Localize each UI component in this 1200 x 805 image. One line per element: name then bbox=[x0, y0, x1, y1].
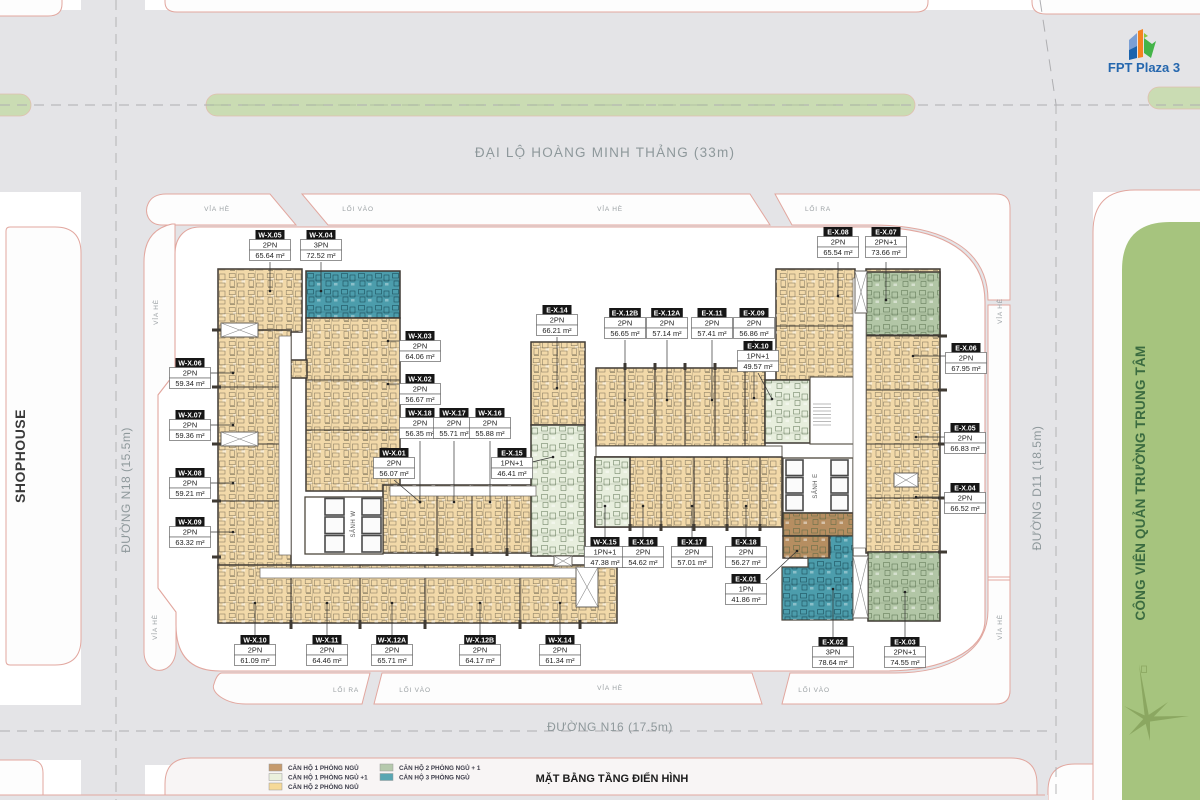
svg-text:2PN: 2PN bbox=[958, 494, 972, 503]
svg-text:2PN: 2PN bbox=[747, 319, 761, 328]
svg-text:49.57 m²: 49.57 m² bbox=[743, 362, 773, 371]
svg-text:56.07 m²: 56.07 m² bbox=[379, 469, 409, 478]
svg-text:55.88 m²: 55.88 m² bbox=[475, 429, 505, 438]
svg-text:W-X.08: W-X.08 bbox=[178, 470, 201, 477]
svg-text:2PN: 2PN bbox=[385, 646, 399, 655]
svg-text:72.52 m²: 72.52 m² bbox=[306, 251, 336, 260]
svg-text:57.41 m²: 57.41 m² bbox=[697, 329, 727, 338]
svg-text:59.34 m²: 59.34 m² bbox=[175, 379, 205, 388]
svg-text:2PN: 2PN bbox=[387, 459, 401, 468]
svg-text:73.66 m²: 73.66 m² bbox=[871, 248, 901, 257]
svg-text:1PN+1: 1PN+1 bbox=[594, 548, 617, 557]
svg-text:E-X.06: E-X.06 bbox=[955, 345, 977, 352]
svg-text:2PN: 2PN bbox=[183, 369, 197, 378]
svg-text:CĂN HỘ 2 PHÒNG NGỦ: CĂN HỘ 2 PHÒNG NGỦ bbox=[288, 782, 359, 791]
svg-text:VỈA HÈ: VỈA HÈ bbox=[151, 299, 160, 325]
svg-text:2PN: 2PN bbox=[553, 646, 567, 655]
svg-text:2PN: 2PN bbox=[183, 421, 197, 430]
svg-text:78.64 m²: 78.64 m² bbox=[818, 658, 848, 667]
svg-text:2PN: 2PN bbox=[618, 319, 632, 328]
svg-text:VỈA HÈ: VỈA HÈ bbox=[995, 298, 1004, 324]
svg-text:E-X.05: E-X.05 bbox=[954, 425, 976, 432]
svg-text:66.52 m²: 66.52 m² bbox=[950, 504, 980, 513]
svg-text:W-X.11: W-X.11 bbox=[316, 637, 339, 644]
svg-text:W-X.16: W-X.16 bbox=[478, 410, 501, 417]
svg-text:65.71 m²: 65.71 m² bbox=[377, 656, 407, 665]
svg-text:E-X.12B: E-X.12B bbox=[612, 310, 638, 317]
svg-text:2PN: 2PN bbox=[636, 548, 650, 557]
svg-text:2PN: 2PN bbox=[413, 419, 427, 428]
svg-text:W-X.06: W-X.06 bbox=[178, 360, 201, 367]
svg-text:SHOPHOUSE: SHOPHOUSE bbox=[12, 409, 28, 503]
svg-text:47.38 m²: 47.38 m² bbox=[590, 558, 620, 567]
svg-text:VỈA HÈ: VỈA HÈ bbox=[204, 204, 230, 213]
svg-text:E-X.16: E-X.16 bbox=[632, 539, 654, 546]
svg-text:ĐƯỜNG N16 (17.5m): ĐƯỜNG N16 (17.5m) bbox=[547, 719, 673, 734]
svg-text:57.14 m²: 57.14 m² bbox=[652, 329, 682, 338]
svg-text:2PN: 2PN bbox=[959, 354, 973, 363]
svg-text:CĂN HỘ 1 PHÒNG NGỦ: CĂN HỘ 1 PHÒNG NGỦ bbox=[288, 763, 359, 772]
svg-text:2PN: 2PN bbox=[447, 419, 461, 428]
svg-text:CĂN HỘ 3 PHÒNG NGỦ: CĂN HỘ 3 PHÒNG NGỦ bbox=[399, 773, 470, 782]
svg-text:E-X.17: E-X.17 bbox=[681, 539, 703, 546]
svg-text:E-X.09: E-X.09 bbox=[743, 310, 765, 317]
svg-text:2PN+1: 2PN+1 bbox=[894, 648, 917, 657]
svg-text:W-X.09: W-X.09 bbox=[178, 519, 201, 526]
svg-text:E-X.07: E-X.07 bbox=[875, 229, 897, 236]
svg-text:W-X.12A: W-X.12A bbox=[378, 637, 406, 644]
svg-text:2PN: 2PN bbox=[958, 434, 972, 443]
svg-text:2PN: 2PN bbox=[473, 646, 487, 655]
svg-text:2PN: 2PN bbox=[550, 316, 564, 325]
svg-text:66.83 m²: 66.83 m² bbox=[950, 444, 980, 453]
svg-text:64.46 m²: 64.46 m² bbox=[312, 656, 342, 665]
svg-text:2PN: 2PN bbox=[660, 319, 674, 328]
svg-text:W-X.14: W-X.14 bbox=[548, 637, 571, 644]
svg-text:VỈA HÈ: VỈA HÈ bbox=[597, 683, 623, 692]
svg-text:2PN: 2PN bbox=[413, 342, 427, 351]
svg-text:46.41 m²: 46.41 m² bbox=[497, 469, 527, 478]
svg-text:3PN: 3PN bbox=[314, 241, 328, 250]
svg-text:W-X.05: W-X.05 bbox=[258, 232, 281, 239]
svg-text:54.62 m²: 54.62 m² bbox=[628, 558, 658, 567]
svg-text:1PN+1: 1PN+1 bbox=[747, 352, 770, 361]
svg-text:59.36 m²: 59.36 m² bbox=[175, 431, 205, 440]
svg-text:56.27 m²: 56.27 m² bbox=[731, 558, 761, 567]
svg-text:E-X.15: E-X.15 bbox=[501, 450, 523, 457]
svg-text:E-X.18: E-X.18 bbox=[735, 539, 757, 546]
svg-text:E-X.01: E-X.01 bbox=[735, 576, 757, 583]
svg-text:2PN: 2PN bbox=[263, 241, 277, 250]
svg-text:2PN: 2PN bbox=[413, 385, 427, 394]
svg-text:VỈA HÈ: VỈA HÈ bbox=[150, 614, 159, 640]
svg-text:ĐƯỜNG D11 (18.5m): ĐƯỜNG D11 (18.5m) bbox=[1029, 426, 1044, 551]
svg-text:FPT Plaza 3: FPT Plaza 3 bbox=[1108, 60, 1180, 75]
svg-text:CĂN HỘ 2 PHÒNG NGỦ + 1: CĂN HỘ 2 PHÒNG NGỦ + 1 bbox=[399, 763, 481, 772]
svg-text:W-X.03: W-X.03 bbox=[408, 333, 431, 340]
svg-text:2PN: 2PN bbox=[739, 548, 753, 557]
svg-text:E-X.10: E-X.10 bbox=[747, 343, 769, 350]
svg-text:2PN: 2PN bbox=[705, 319, 719, 328]
svg-text:W-X.18: W-X.18 bbox=[408, 410, 431, 417]
svg-text:61.09 m²: 61.09 m² bbox=[240, 656, 270, 665]
svg-text:SẢNH E: SẢNH E bbox=[812, 473, 819, 498]
svg-text:2PN: 2PN bbox=[183, 528, 197, 537]
svg-text:2PN+1: 2PN+1 bbox=[875, 238, 898, 247]
svg-text:64.17 m²: 64.17 m² bbox=[465, 656, 495, 665]
svg-text:W-X.01: W-X.01 bbox=[382, 450, 405, 457]
svg-text:VỈA HÈ: VỈA HÈ bbox=[995, 614, 1004, 640]
svg-text:2PN: 2PN bbox=[685, 548, 699, 557]
svg-text:W-X.10: W-X.10 bbox=[243, 637, 266, 644]
svg-text:56.65 m²: 56.65 m² bbox=[610, 329, 640, 338]
svg-text:56.35 m²: 56.35 m² bbox=[405, 429, 435, 438]
svg-text:CÔNG VIÊN QUẢN TRƯỜNG TRUNG TÂ: CÔNG VIÊN QUẢN TRƯỜNG TRUNG TÂM bbox=[1133, 346, 1148, 621]
svg-text:65.64 m²: 65.64 m² bbox=[255, 251, 285, 260]
svg-text:56.67 m²: 56.67 m² bbox=[405, 395, 435, 404]
svg-text:61.34 m²: 61.34 m² bbox=[545, 656, 575, 665]
svg-text:59.21 m²: 59.21 m² bbox=[175, 489, 205, 498]
svg-text:2PN: 2PN bbox=[320, 646, 334, 655]
svg-text:1PN+1: 1PN+1 bbox=[501, 459, 524, 468]
svg-text:ĐẠI LỘ HOÀNG MINH THẢNG (33m): ĐẠI LỘ HOÀNG MINH THẢNG (33m) bbox=[475, 145, 735, 160]
svg-text:E-X.02: E-X.02 bbox=[822, 639, 844, 646]
svg-text:3PN: 3PN bbox=[826, 648, 840, 657]
svg-text:65.54 m²: 65.54 m² bbox=[823, 248, 853, 257]
svg-text:MẶT BẰNG TẦNG ĐIỂN HÌNH: MẶT BẰNG TẦNG ĐIỂN HÌNH bbox=[536, 772, 689, 785]
svg-text:W-X.04: W-X.04 bbox=[309, 232, 332, 239]
svg-text:56.86 m²: 56.86 m² bbox=[739, 329, 769, 338]
svg-text:W-X.15: W-X.15 bbox=[593, 539, 616, 546]
svg-text:2PN: 2PN bbox=[831, 238, 845, 247]
svg-text:57.01 m²: 57.01 m² bbox=[677, 558, 707, 567]
svg-text:63.32 m²: 63.32 m² bbox=[175, 538, 205, 547]
svg-text:41.86 m²: 41.86 m² bbox=[731, 595, 761, 604]
svg-text:E-X.12A: E-X.12A bbox=[654, 310, 680, 317]
svg-text:E-X.03: E-X.03 bbox=[894, 639, 916, 646]
svg-text:64.06 m²: 64.06 m² bbox=[405, 352, 435, 361]
svg-text:E-X.04: E-X.04 bbox=[954, 485, 976, 492]
svg-text:W-X.02: W-X.02 bbox=[408, 376, 431, 383]
svg-text:2PN: 2PN bbox=[483, 419, 497, 428]
svg-text:ĐƯỜNG N18 (15.5m): ĐƯỜNG N18 (15.5m) bbox=[118, 427, 133, 553]
svg-text:E-X.11: E-X.11 bbox=[701, 310, 722, 317]
svg-text:67.95 m²: 67.95 m² bbox=[951, 364, 981, 373]
svg-text:CĂN HỘ 1 PHÒNG NGỦ +1: CĂN HỘ 1 PHÒNG NGỦ +1 bbox=[288, 773, 368, 782]
svg-text:2PN: 2PN bbox=[248, 646, 262, 655]
svg-text:W-X.12B: W-X.12B bbox=[466, 637, 494, 644]
svg-text:2PN: 2PN bbox=[183, 479, 197, 488]
svg-text:SẢNH W: SẢNH W bbox=[350, 511, 357, 538]
svg-text:W-X.17: W-X.17 bbox=[442, 410, 465, 417]
svg-text:VỈA HÈ: VỈA HÈ bbox=[597, 204, 623, 213]
svg-text:66.21 m²: 66.21 m² bbox=[542, 326, 572, 335]
svg-text:E-X.08: E-X.08 bbox=[827, 229, 849, 236]
svg-text:E-X.14: E-X.14 bbox=[546, 307, 568, 314]
svg-text:1PN: 1PN bbox=[739, 585, 753, 594]
svg-text:55.71 m²: 55.71 m² bbox=[439, 429, 469, 438]
svg-text:74.55 m²: 74.55 m² bbox=[890, 658, 920, 667]
svg-text:W-X.07: W-X.07 bbox=[178, 412, 201, 419]
